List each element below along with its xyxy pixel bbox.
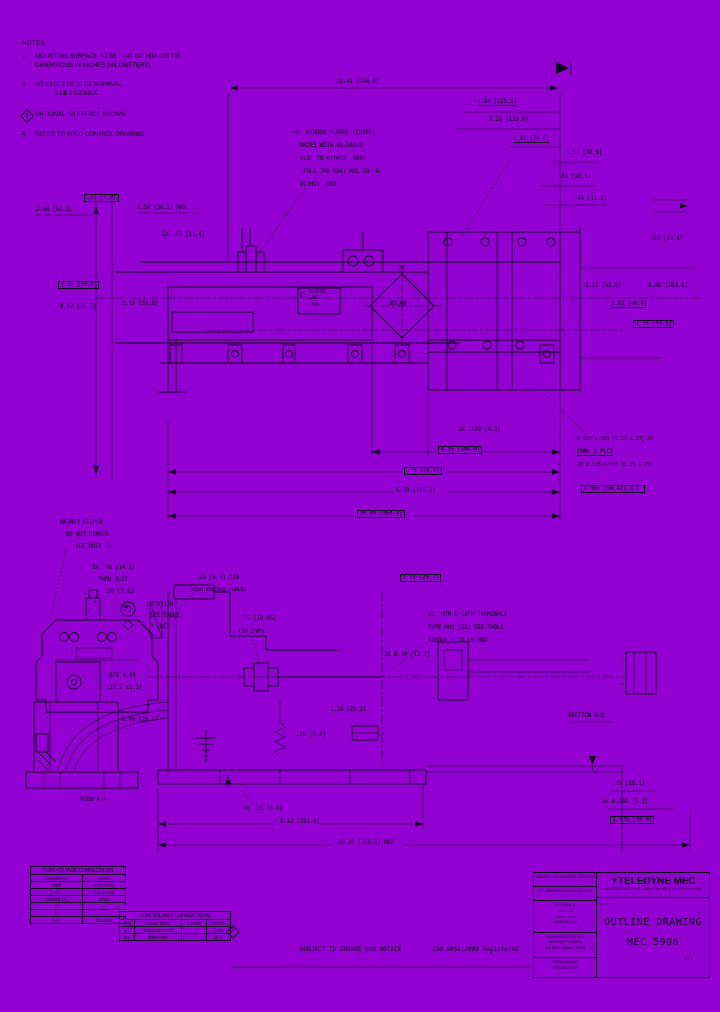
table-row: ANODE (A)GND [31,896,126,903]
dimension-label: WITHIN .002 [300,182,336,188]
table-cell: #20 AWG [82,882,125,889]
nameplate-line: USA [312,303,319,307]
dimension-label: TYPE MHV (2X) SEE TABLE [428,625,504,631]
tolerance-row: UNLESS OTHERWISE SPECIFIED [534,873,596,887]
brand-name: ▼TELEDYNE MEC [597,875,709,887]
dimension-label: 1.18 [30.0] [58,281,99,289]
nameplate-line: MEC [312,296,319,300]
dimension-label: .75 [19.1] [404,467,442,475]
table-cell: GRN [206,927,230,934]
dimension-label: 4X .25 [6.4] [243,806,282,812]
datum-flag-icon [589,756,596,765]
column-header: DESIG [206,920,230,927]
dimension-label: 2 PLCS [150,624,170,630]
dimension-label: 2.03 [51.6] [122,301,158,307]
dimension-label: 2.12 [53.8] [585,283,621,289]
dimension-label: (SEE NOTE 3) [72,544,111,550]
dimension-label: 1.50 [38.1] MAX [137,205,186,211]
dimension-label: 2X Ø.128 +.010 [3.25 +.25] [577,463,653,468]
table-cell: — [82,903,125,910]
table-row: (A)(CASE) [31,917,126,924]
note-text: WEIGHT: 2 LB 10 OZ NOMINAL3 LB 2 OZ MAX [35,82,121,99]
dimension-label: 10.43 [264.9] [336,79,379,85]
dimension-label: DO NOT REMOVE [66,532,109,538]
dimension-label: FLAT TO WITHIN .0005 [300,156,366,162]
note-number: 2. [22,82,35,99]
table-cell: HTR [31,882,83,889]
dimension-label: 2X Ø.203 [5.2] [602,799,648,805]
note-item: 4.REFER TO SPEC CONTROL DRAWING. [22,132,146,141]
tolerance-row: THIRD ANGLEPROJECTION [534,958,596,977]
dimension-label: Ø.320 ±.005 [8.13 ±.13] 2X [577,437,653,442]
dimension-label: (FULL IND RDG) REL TO -B- [300,169,382,175]
table-cell: ANODE (A) [31,896,83,903]
dimension-label: 2.300 [58.42] B.C. [581,485,645,493]
table-cell: E1 [120,927,135,934]
dimension-label: 2X .45 [11.4] [162,232,205,238]
title-block-tolerances: UNLESS OTHERWISE SPECIFIEDALL DIMENSIONS… [534,873,597,977]
notes-block: NOTES: 1.MOUNTING SURFACE TO BE FLAT WIT… [22,40,272,47]
dimension-label: 1.52 [38.6] [566,150,602,156]
table-row: CATHYELLOW [31,889,126,896]
drawing-linework [0,0,720,1012]
note-diamond-icon: 3 [22,112,35,122]
dimension-label: 1.13 [28.7] [400,574,441,582]
table-row: E1THERMISTOR·GRN [120,927,231,934]
note-item: 2.WEIGHT: 2 LB 10 OZ NOMINAL3 LB 2 OZ MA… [22,82,121,99]
note-number: 1. [22,54,35,71]
dimension-label: .75 [19.05] [240,616,276,622]
brand-address: 1274 TERRA BELLA AVE., MOUNTAIN VIEW, CA… [601,887,704,891]
column-header: TERMINAL [31,875,83,882]
dimension-label: .29 [7.4] [296,732,326,738]
dimension-label: .75 [396,266,404,271]
nameplate-line: TELEDYNE [308,290,326,294]
dimension-label: VIEW A-A [80,797,106,803]
dimension-label: 1.375 [34.9] [610,816,654,824]
dimension-label: .30 [7.6] [104,589,134,595]
column-header: DESIG [82,875,125,882]
dimension-label: .75 [19.1] [612,781,645,787]
table-row: HTR#20 AWG [31,882,126,889]
table-cell: CATH [31,889,83,896]
tolerance-row: TOLERANCES APPLYBEFORE PLATINGDO NOT SCA… [534,933,596,959]
dimension-label: 4.25 [108.0] [438,446,482,454]
table-row: K— [31,903,126,910]
table-title: HIGH VOLTAGE CONNECTIONS [31,867,126,875]
iso-registered: ISO 9001:2000 Registered [432,946,519,953]
dimension-label: UG-931/U [147,602,173,608]
dimension-label: (HIGH VOLTAGE CABLE) [188,588,246,593]
dimension-label: 1.00 [25.4] [122,717,158,723]
brand-header: ▼TELEDYNE MEC 1274 TERRA BELLA AVE., MOU… [597,873,709,898]
dimension-label: SECTION B-B [568,713,604,719]
dimension-label: THRU SLOT [98,577,128,583]
table-cell: GND [82,896,125,903]
table-cell: BLK [206,934,230,941]
table-row: F— [31,910,126,917]
doc-title: OUTLINE DRAWING [597,917,709,928]
notes-heading: NOTES: [22,40,272,47]
dimension-label: 9.12 [231.6] [280,819,319,825]
dimension-label: 1.75 [44.5] [633,320,674,328]
tolerance-row: DECIMALS.XX ± .03.XXX ± .010ANGLES ± 2° [534,901,596,932]
column-header: V MAX [182,920,206,927]
dimension-label: 10.40 [264.2] [357,510,405,518]
dimension-label: 2.06 [52.3] [36,207,72,213]
teledyne-logo-icon: ▼ [611,876,619,885]
part-number: MEC 5906 [597,937,709,948]
title-label: TITLE: [599,902,611,907]
table-cell: E2 [120,934,135,941]
table-cell: · [182,927,206,934]
column-header: FUNCTION [135,920,182,927]
dimension-label: MATES WITH UG-584/U [300,143,363,149]
tolerance-row: ALL DIMENSIONS IN INCHES [534,887,596,901]
dimension-label: .875 ±.05 [106,673,136,679]
dimension-label: 2X Ø.50 [12.7] [384,652,430,658]
dimension-label: .44 [11.2] [574,196,607,202]
table-title: LOW VOLTAGE CONNECTIONS [120,912,231,920]
drawing-sheet: 10.43 [264.9]4.94 [125.5]5.26 [133.6]2.9… [0,0,720,1012]
dimension-label: E1, HTR & CATH TERMINALS [428,612,507,618]
view-arrow-icon [556,62,569,74]
table-cell: · [182,934,206,941]
table-row: E2GROUND·BLK [120,934,231,941]
dimension-label: THRU 2 PLCS [577,449,613,456]
dimension-label: 1.81 [46.0] [611,301,647,308]
dimension-label: .88 [22.4] [650,236,683,242]
dimension-label: 4.94 [125.5] [477,99,516,106]
dimension-label: .81 [20.5] [558,174,591,180]
note-text: REFER TO SPEC CONTROL DRAWING. [35,132,146,141]
hv-connections-table: HIGH VOLTAGE CONNECTIONSTERMINALDESIGHTR… [30,866,126,924]
column-header: PIN [120,920,135,927]
dimension-label: (2X TYP) [238,629,264,635]
table-cell: GROUND [135,934,182,941]
table-cell: YELLOW [82,889,125,896]
dimension-label: Ø.62 [15.7] [60,304,96,310]
lv-connections-table: LOW VOLTAGE CONNECTIONSPINFUNCTIONV MAXD… [119,911,231,941]
dimension-label: MAGNET KEEPER [60,520,103,526]
dimension-label: 10.20 [259.1] MAX [338,840,394,846]
dimension-label: 5.26 [133.6] [489,117,528,123]
dimension-label: 1.15 [29.2] [330,707,366,713]
note-text: OPTIONAL INTERFACE SHOWN [35,112,125,122]
dimension-label: [22.2 ±1.3] [106,685,142,691]
dimension-label: TORQUE 8 IN-LB MAX [428,638,487,644]
change-notice: SUBJECT TO CHANGE W/O NOTICE [300,946,401,953]
dimension-label: 6.50 [165.1] [396,488,435,494]
dimension-label: MHV [121,606,128,611]
note-item: 1.MOUNTING SURFACE TO BE FLAT WITHIN .00… [22,54,182,71]
dimension-label: Ø1.00 [390,301,406,307]
note-item: 3OPTIONAL INTERFACE SHOWN [22,112,125,122]
table-cell: K [31,903,83,910]
note-text: MOUNTING SURFACE TO BE FLAT WITHIN .005 … [35,54,182,71]
table-cell: (A) [31,917,83,924]
dimension-label: -C- WINDOW FLANGE (COVER) [293,130,375,136]
scale-note: 1:2 [684,956,693,962]
table-note-number: 3 [231,929,234,934]
dimension-label: .25 [6.4] DIA [196,575,239,581]
dimension-label: 2X .193 [4.9] [458,427,501,433]
note-number: 4. [22,132,35,141]
table-cell: F [31,910,83,917]
dimension-label: 4.06 [103.1] [648,283,687,289]
dimension-label: 2X .56 [14.2] [92,565,135,571]
title-block: UNLESS OTHERWISE SPECIFIEDALL DIMENSIONS… [533,872,710,978]
brand-text: TELEDYNE MEC [618,875,695,887]
dimension-label: 2.97 [75.5] [513,136,549,143]
table-cell: THERMISTOR [135,927,182,934]
dimension-label: SEE TABLE [150,613,180,619]
dimension-label: .31 [7.9] [84,194,119,202]
